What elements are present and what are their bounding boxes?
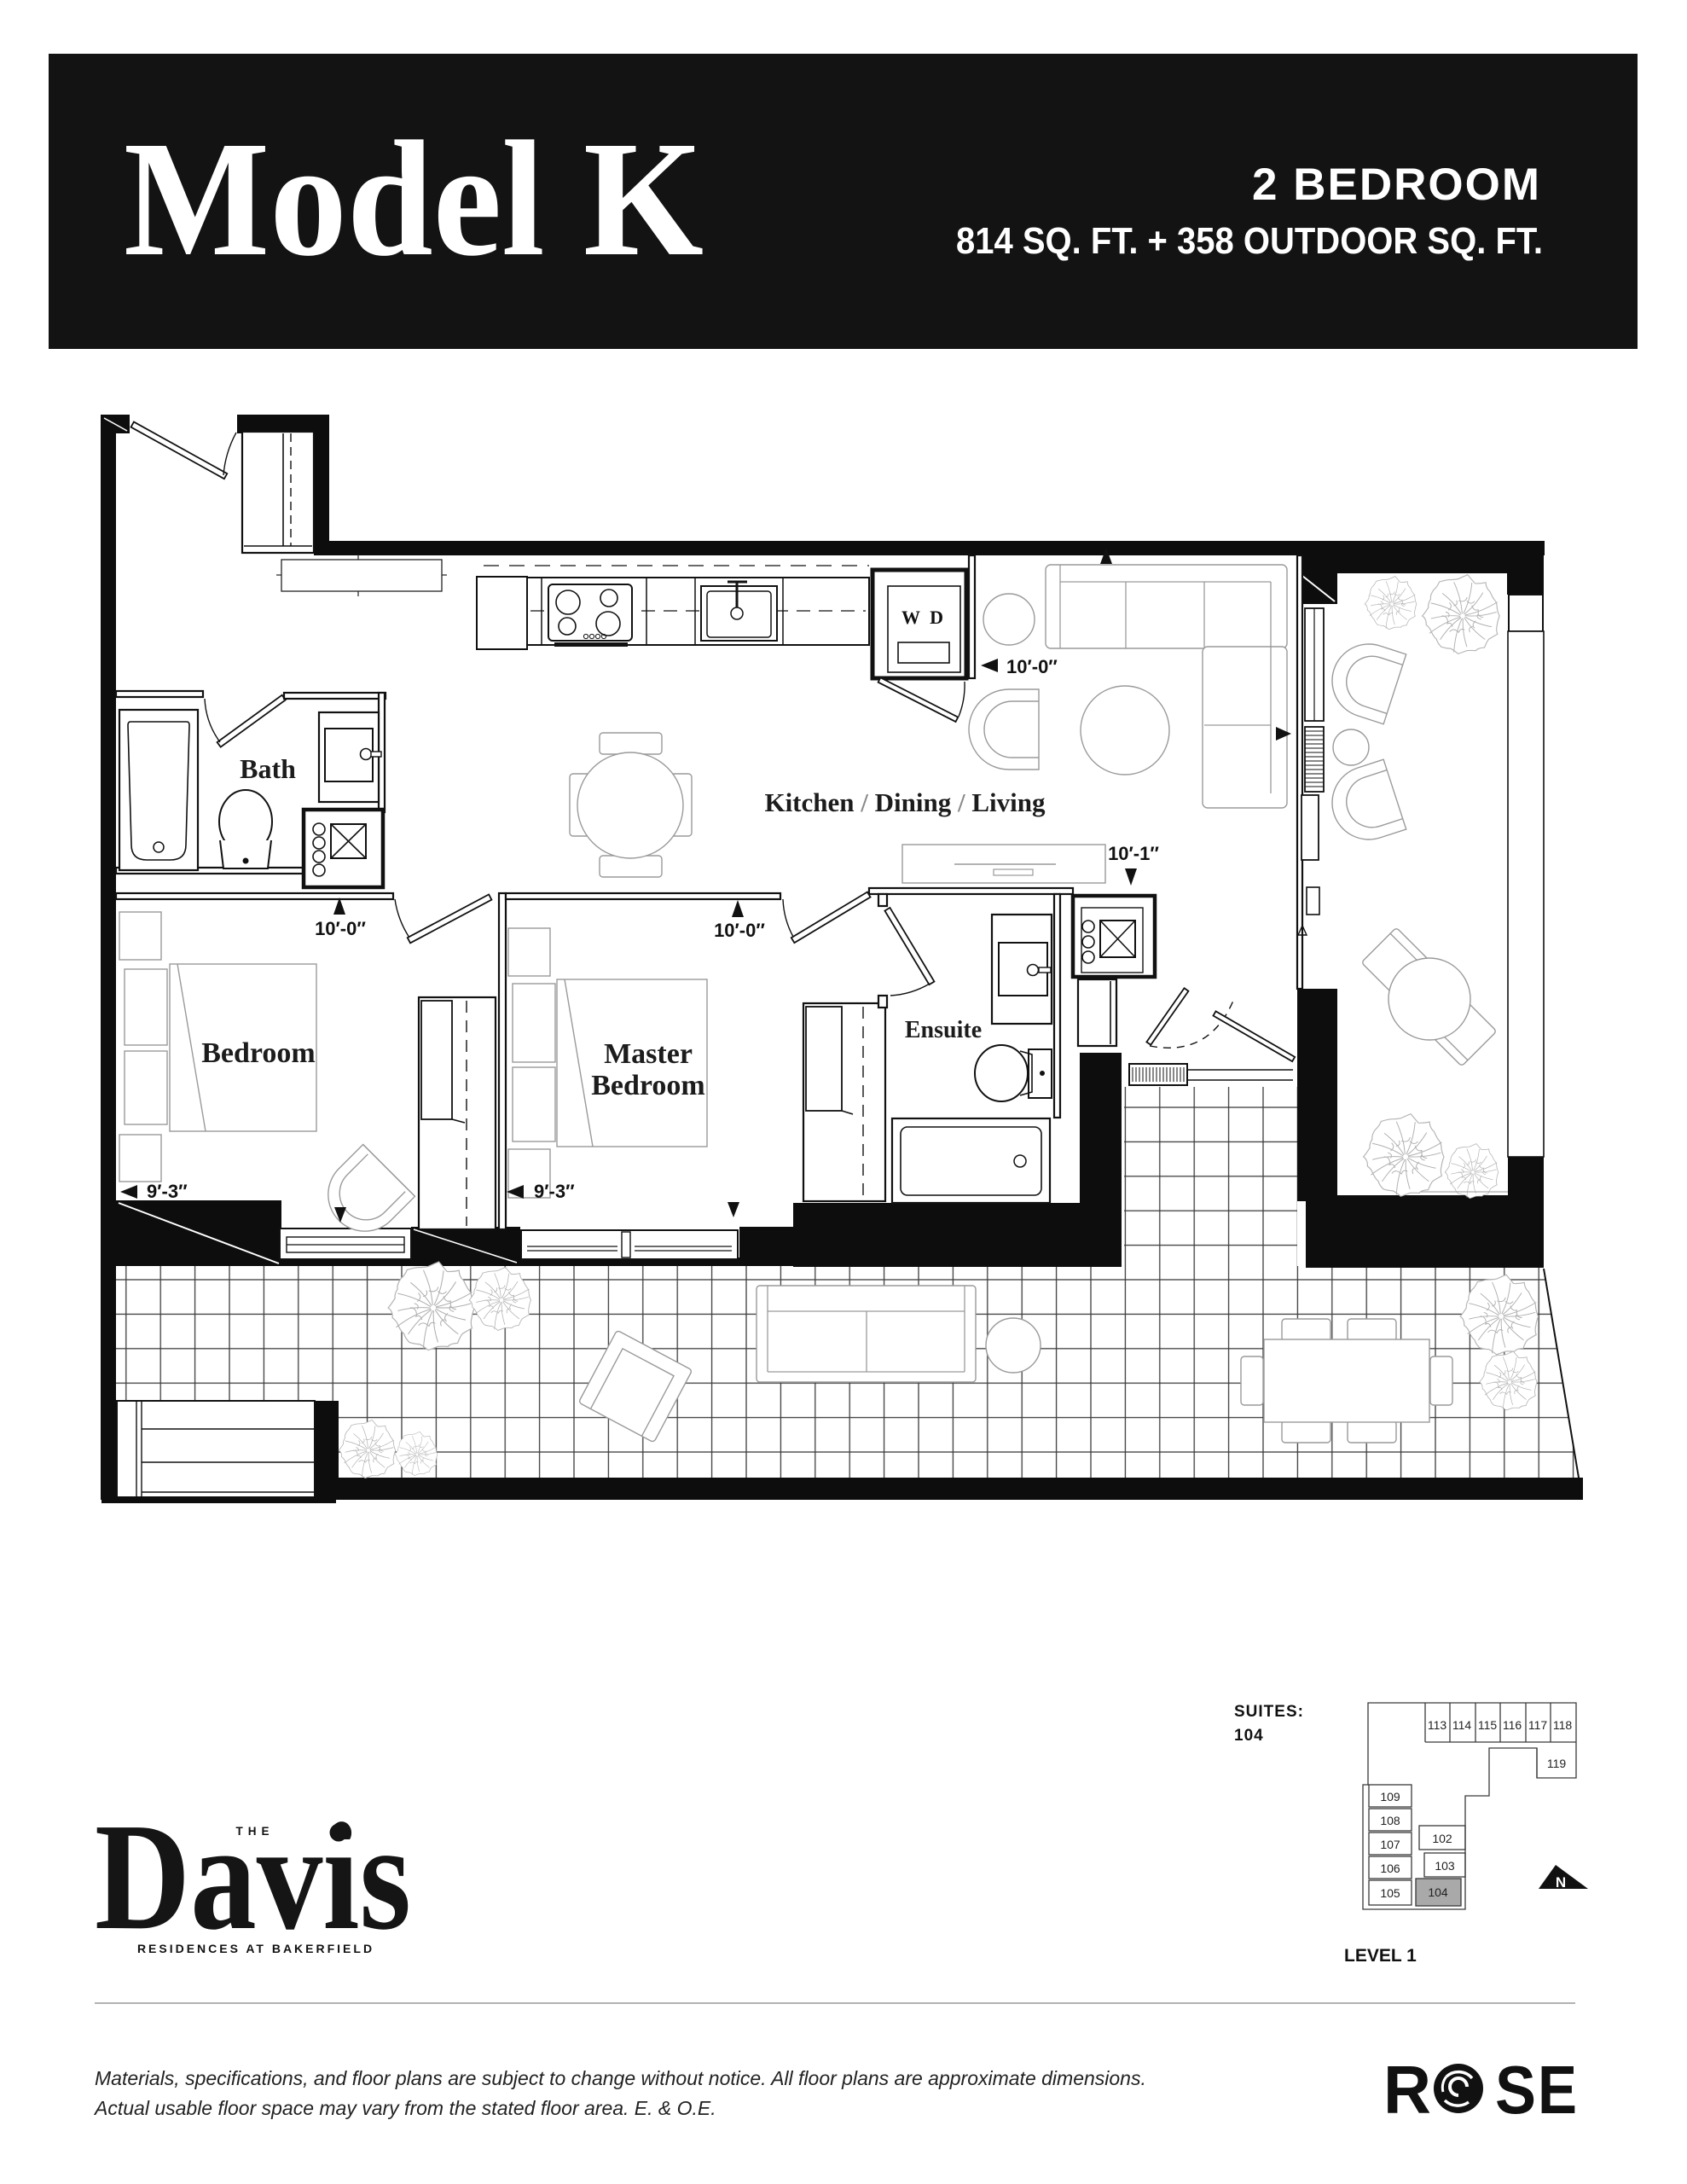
svg-text:Model K: Model K	[124, 107, 704, 290]
svg-text:114: 114	[1452, 1718, 1472, 1732]
svg-text:106: 106	[1380, 1862, 1400, 1875]
svg-text:107: 107	[1380, 1838, 1400, 1851]
svg-text:10′-0″: 10′-0″	[315, 918, 366, 939]
svg-text:10′-0″: 10′-0″	[714, 920, 765, 941]
svg-text:Davis: Davis	[95, 1792, 411, 1961]
svg-text:113: 113	[1428, 1718, 1447, 1732]
svg-text:104: 104	[1234, 1727, 1264, 1745]
svg-text:Ensuite: Ensuite	[905, 1017, 982, 1043]
svg-text:102: 102	[1432, 1832, 1452, 1845]
svg-text:118: 118	[1553, 1718, 1573, 1732]
svg-text:W D: W D	[901, 607, 946, 628]
svg-text:E: E	[1538, 2052, 1577, 2128]
svg-text:Actual usable floor space may: Actual usable floor space may vary from …	[93, 2097, 716, 2119]
svg-text:109: 109	[1380, 1790, 1400, 1804]
svg-text:116: 116	[1503, 1718, 1522, 1732]
svg-text:9′-3″: 9′-3″	[534, 1181, 575, 1202]
svg-text:9′-3″: 9′-3″	[147, 1181, 188, 1202]
svg-text:Master: Master	[604, 1038, 693, 1070]
svg-text:10′-0″: 10′-0″	[1006, 656, 1058, 677]
svg-text:117: 117	[1528, 1718, 1548, 1732]
svg-text:Materials, specifications, and: Materials, specifications, and floor pla…	[95, 2067, 1146, 2089]
svg-text:SUITES:: SUITES:	[1234, 1703, 1304, 1721]
svg-text:115: 115	[1478, 1718, 1498, 1732]
svg-text:10′-1″: 10′-1″	[1108, 843, 1159, 864]
svg-text:Bedroom: Bedroom	[201, 1037, 315, 1069]
svg-text:814 SQ. FT. + 358 OUTDOOR SQ.: 814 SQ. FT. + 358 OUTDOOR SQ. FT.	[956, 220, 1543, 262]
svg-text:R: R	[1383, 2052, 1431, 2128]
svg-text:S: S	[1495, 2052, 1536, 2128]
svg-text:N: N	[1556, 1874, 1566, 1891]
svg-text:Bedroom: Bedroom	[591, 1070, 704, 1101]
svg-text:103: 103	[1435, 1859, 1455, 1873]
svg-text:Bath: Bath	[240, 753, 296, 784]
svg-text:RESIDENCES AT BAKERFIELD: RESIDENCES AT BAKERFIELD	[137, 1942, 374, 1955]
svg-text:105: 105	[1380, 1886, 1400, 1900]
svg-text:Kitchen / Dining / Living: Kitchen / Dining / Living	[764, 787, 1046, 817]
svg-text:2 BEDROOM: 2 BEDROOM	[1252, 160, 1541, 210]
svg-text:104: 104	[1428, 1885, 1448, 1899]
svg-text:108: 108	[1380, 1814, 1400, 1827]
svg-text:119: 119	[1547, 1757, 1567, 1770]
svg-text:LEVEL 1: LEVEL 1	[1344, 1946, 1417, 1966]
